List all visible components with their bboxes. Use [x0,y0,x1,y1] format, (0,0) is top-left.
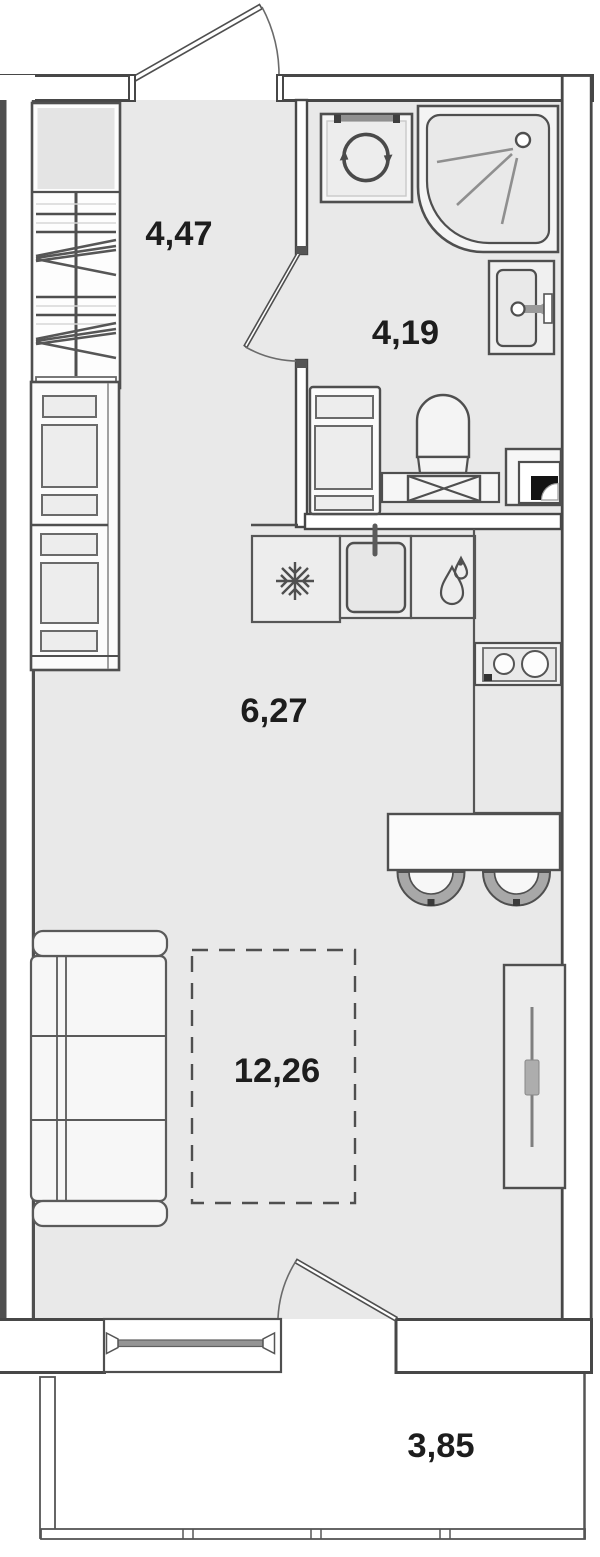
svg-text:4,19: 4,19 [372,314,439,352]
svg-text:4,47: 4,47 [145,215,212,253]
svg-text:3,85: 3,85 [407,1427,474,1465]
svg-text:12,26: 12,26 [234,1052,320,1090]
svg-text:6,27: 6,27 [240,692,307,730]
